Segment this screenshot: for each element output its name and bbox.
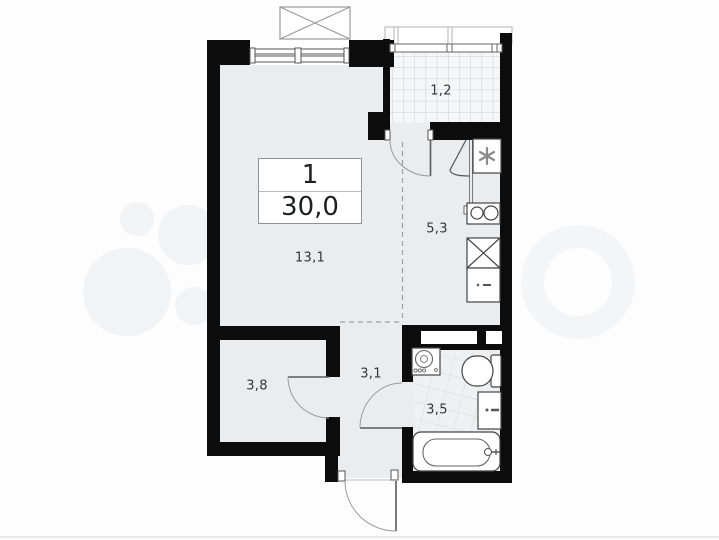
- room-label-loggia: 1,2: [430, 84, 452, 99]
- living-room-window: [250, 40, 349, 65]
- bathtub: [413, 432, 500, 471]
- image-bottom-edge: [0, 536, 719, 538]
- upper-balcony-outline: [385, 27, 512, 44]
- room-label-hallway: 3,1: [360, 367, 382, 382]
- room-label-living-room: 13,1: [295, 251, 325, 266]
- total-area: 30,0: [259, 192, 361, 224]
- avito-watermark-letter-o: [521, 225, 635, 339]
- kitchen-cabinet: [467, 268, 500, 302]
- kitchen-sink: [467, 238, 500, 268]
- washing-machine: [412, 348, 440, 375]
- entrance-door: [338, 470, 398, 531]
- room-label-wardrobe: 3,8: [246, 379, 268, 394]
- wall-duct-niches: [421, 331, 502, 344]
- balcony-glazing: [390, 44, 502, 52]
- upper-floor-balcony-box: [280, 7, 350, 39]
- unit-info-box: 1 30,0: [258, 158, 362, 224]
- cooktop-2-burner: [464, 203, 500, 224]
- vanity-sink: [478, 392, 501, 429]
- room-label-kitchen: 5,3: [426, 222, 448, 237]
- rooms-count: 1: [259, 159, 361, 192]
- floorplan-image: 1 30,0 1,2 5,3 13,1 3,8 3,1 3,5: [0, 0, 719, 540]
- room-label-bathroom: 3,5: [426, 403, 448, 418]
- floorplan-drawing: [0, 0, 719, 540]
- toilet: [462, 355, 501, 387]
- avito-watermark-logo: [83, 202, 218, 336]
